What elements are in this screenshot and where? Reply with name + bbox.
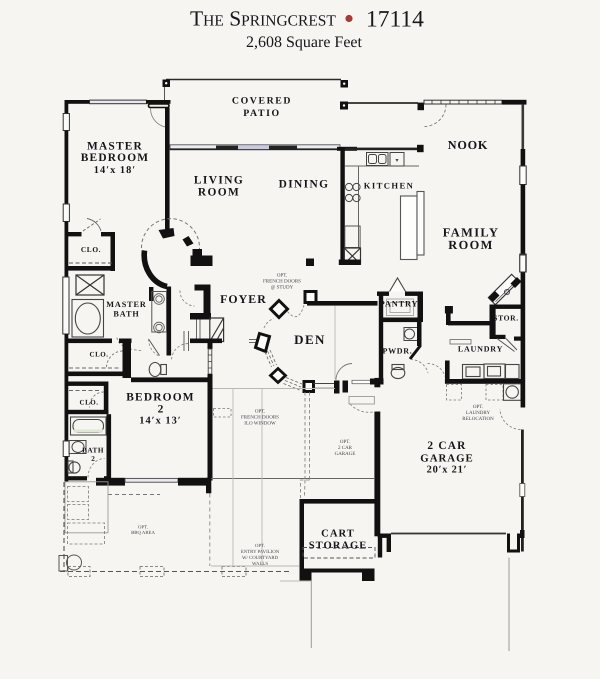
- svg-text:CART: CART: [321, 529, 355, 540]
- svg-text:RELOCATION: RELOCATION: [462, 416, 494, 422]
- svg-text:20′x 21′: 20′x 21′: [427, 465, 468, 476]
- svg-text:14′x 18′: 14′x 18′: [94, 165, 136, 176]
- svg-text:2 CAR: 2 CAR: [427, 440, 466, 452]
- svg-text:STORAGE: STORAGE: [309, 541, 368, 552]
- svg-text:OPT.: OPT.: [473, 404, 483, 410]
- svg-text:CLO.: CLO.: [81, 245, 101, 254]
- svg-text:PATIO: PATIO: [243, 108, 281, 119]
- svg-text:OPT.: OPT.: [340, 439, 350, 445]
- svg-text:PANTRY: PANTRY: [380, 300, 419, 309]
- svg-text:@ STUDY: @ STUDY: [271, 285, 294, 291]
- svg-text:14′x 13′: 14′x 13′: [139, 416, 181, 427]
- svg-text:GARAGE: GARAGE: [420, 453, 473, 465]
- svg-text:ROOM: ROOM: [448, 238, 494, 252]
- svg-text:PWDR.: PWDR.: [383, 347, 413, 356]
- svg-text:OPT.: OPT.: [255, 543, 265, 549]
- svg-text:DINING: DINING: [279, 179, 330, 191]
- svg-text:ILO WINDOW: ILO WINDOW: [244, 421, 276, 427]
- svg-text:LAUNDRY: LAUNDRY: [466, 410, 491, 416]
- svg-text:17114: 17114: [366, 7, 424, 33]
- svg-text:OPT.: OPT.: [255, 409, 265, 415]
- svg-text:FRENCH DOORS: FRENCH DOORS: [241, 415, 279, 421]
- svg-text:DEN: DEN: [294, 332, 326, 347]
- svg-text:ENTRY PAVILION: ENTRY PAVILION: [241, 549, 280, 555]
- svg-text:2,608 Square Feet: 2,608 Square Feet: [246, 34, 363, 51]
- svg-text:ROOM: ROOM: [198, 187, 240, 199]
- svg-text:COVERED: COVERED: [232, 96, 292, 107]
- svg-text:BATH: BATH: [113, 310, 139, 319]
- svg-text:OPT.: OPT.: [277, 273, 287, 279]
- svg-text:BEDROOM: BEDROOM: [81, 152, 150, 164]
- svg-text:FRENCH DOORS: FRENCH DOORS: [263, 279, 301, 285]
- svg-text:CLO.: CLO.: [80, 399, 99, 407]
- svg-text:GARAGE: GARAGE: [335, 451, 356, 457]
- svg-text:▾: ▾: [395, 158, 398, 164]
- svg-text:BEDROOM: BEDROOM: [126, 392, 195, 404]
- svg-text:2: 2: [158, 404, 164, 416]
- svg-text:LAUNDRY: LAUNDRY: [458, 345, 503, 354]
- svg-text:NOOK: NOOK: [448, 138, 488, 152]
- svg-text:MASTER: MASTER: [87, 141, 143, 153]
- svg-text:W/ COURTYARD: W/ COURTYARD: [242, 555, 279, 561]
- svg-text:2 CAR: 2 CAR: [338, 445, 353, 451]
- svg-text:WALLS: WALLS: [252, 561, 268, 567]
- svg-text:KITCHEN: KITCHEN: [364, 181, 414, 191]
- svg-text:STOR.: STOR.: [493, 314, 518, 323]
- svg-text:MASTER: MASTER: [106, 300, 146, 309]
- svg-text:FOYER: FOYER: [220, 292, 267, 306]
- svg-text:CLO.: CLO.: [90, 351, 109, 359]
- svg-text:OPT.: OPT.: [138, 525, 148, 531]
- svg-text:BBQ AREA: BBQ AREA: [131, 530, 155, 536]
- svg-text:2: 2: [91, 455, 95, 463]
- svg-text:BATH: BATH: [82, 447, 104, 455]
- svg-text:LIVING: LIVING: [194, 175, 244, 187]
